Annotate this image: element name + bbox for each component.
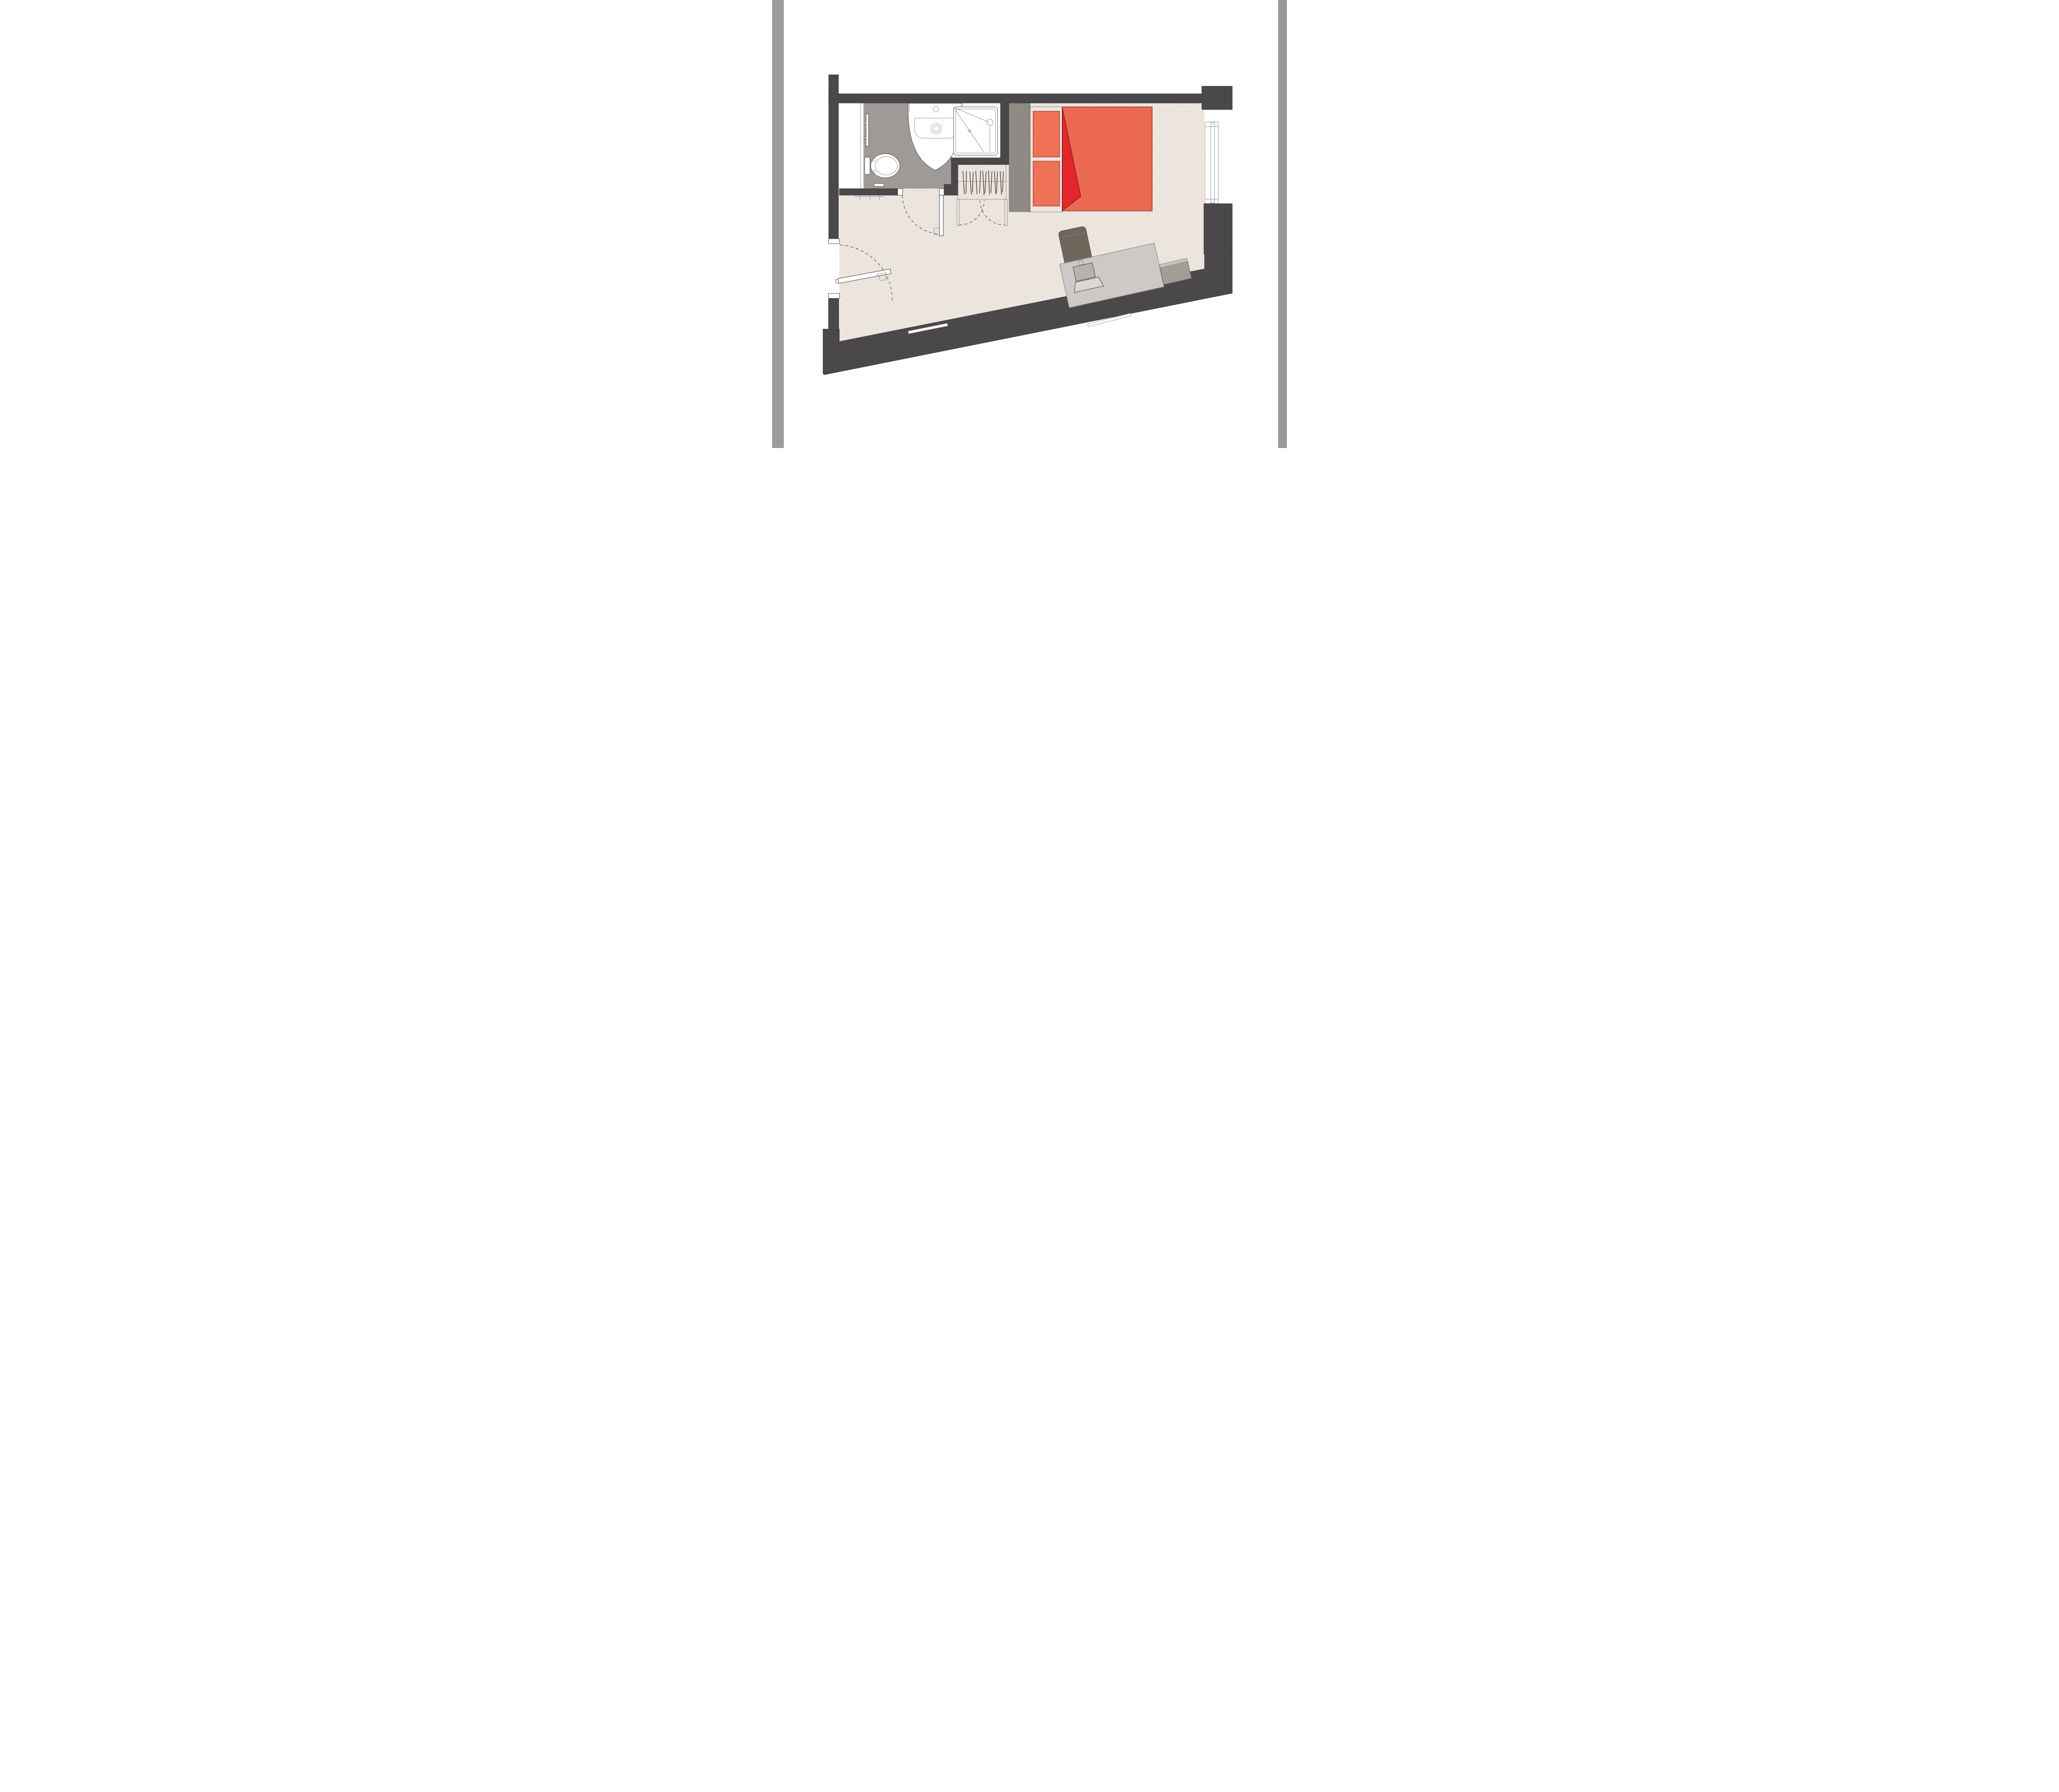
left-wall	[829, 75, 839, 239]
headboard-panel	[1009, 103, 1030, 212]
top-wall	[829, 94, 1202, 103]
toilet-bowl	[871, 154, 900, 178]
floor-plan-page	[772, 0, 1287, 448]
pillow-top	[1033, 111, 1060, 157]
toilet-tank	[865, 157, 870, 174]
shower	[954, 107, 998, 155]
page-border-right	[1278, 0, 1287, 448]
window-jamb-top	[1202, 86, 1232, 110]
pillow-bottom	[1033, 161, 1060, 206]
bathroom-wall	[839, 189, 898, 195]
service-shaft	[839, 103, 864, 189]
entry-jamb-bottom	[829, 294, 840, 299]
shower-wall-bottom	[951, 158, 1009, 164]
window	[1205, 122, 1218, 203]
page-border-left	[772, 0, 784, 448]
bathroom-door-leaf	[939, 195, 944, 236]
shower-wall-right	[1000, 103, 1009, 165]
left-wall-stub	[829, 299, 839, 330]
bathroom-door-jamb-left	[898, 189, 903, 195]
entry-jamb-top	[829, 239, 840, 244]
bathroom-door-jamb-right	[939, 189, 944, 195]
window-jamb-bottom	[1204, 204, 1232, 254]
floor-plan-drawing	[772, 0, 1287, 448]
shower-tray	[954, 107, 998, 155]
